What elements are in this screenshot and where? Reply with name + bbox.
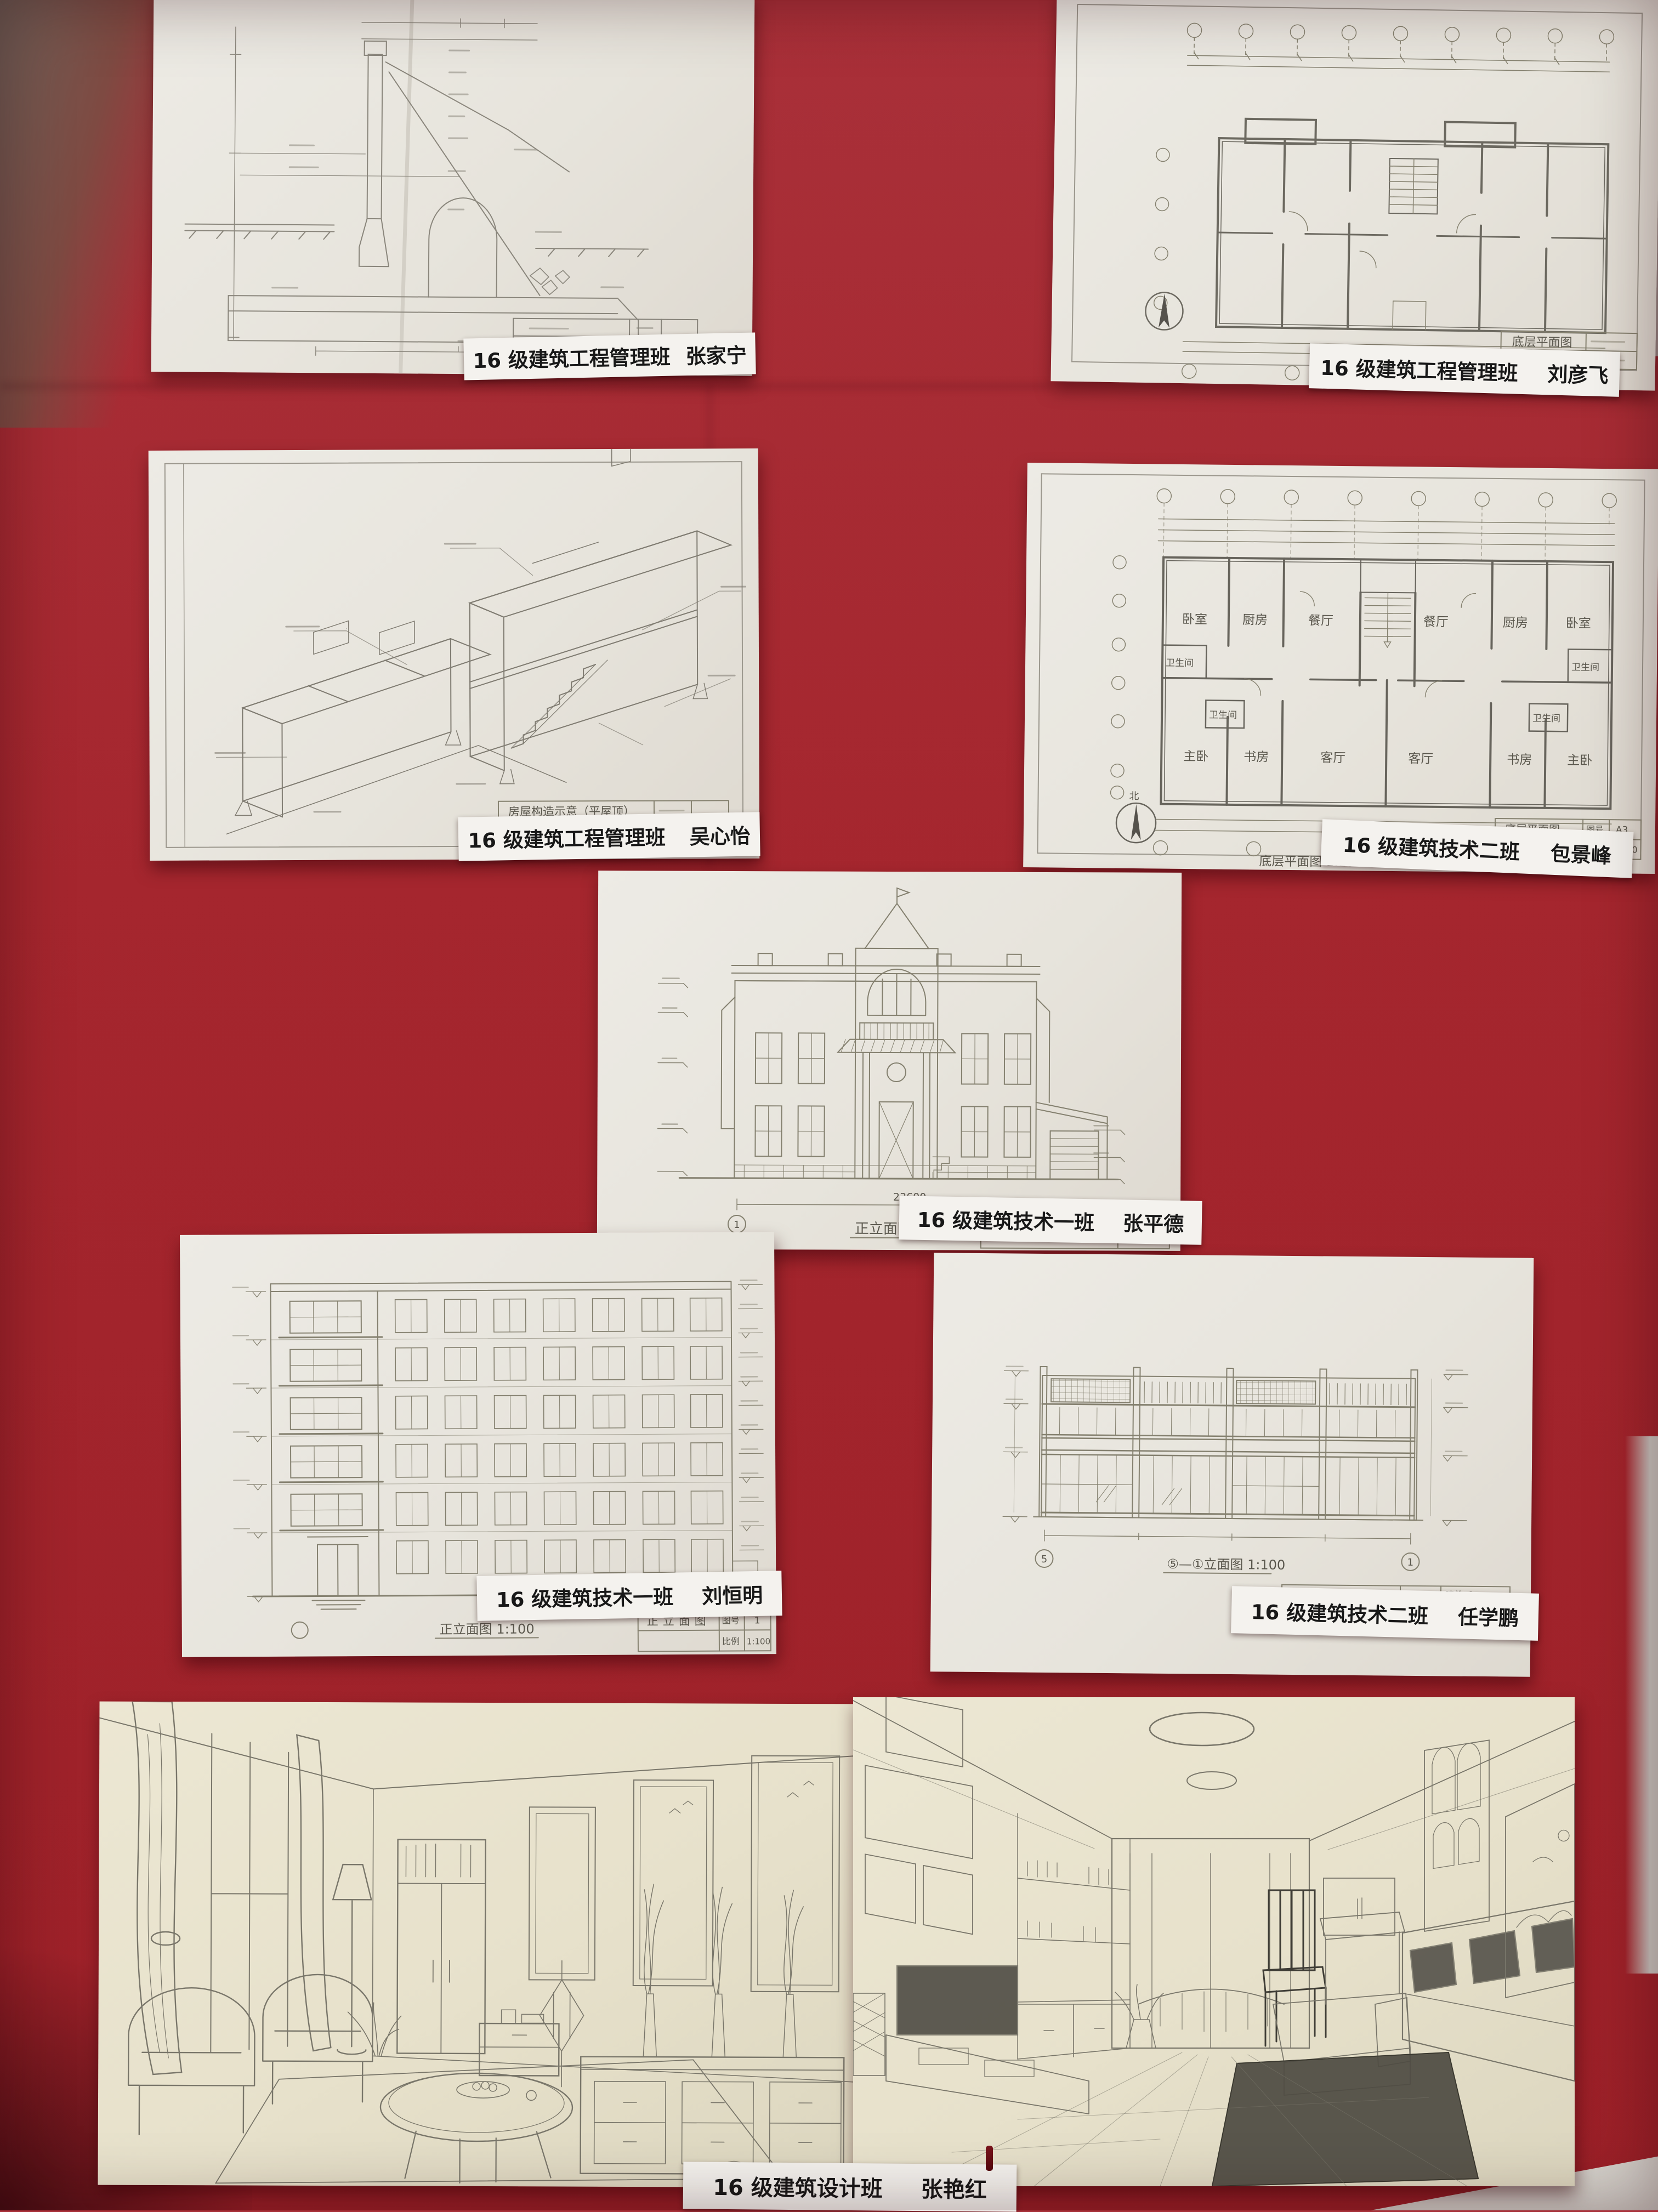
window-row [396,1539,723,1574]
svg-text:书房: 书房 [1507,753,1532,767]
svg-text:卧室: 卧室 [1182,612,1207,627]
fabric-crease-horizontal [0,384,1053,389]
axis-bubbles-left [1154,148,1170,309]
axis-bubble [292,1622,308,1639]
sheet-no: 1 [754,1615,760,1626]
svg-text:卫生间: 卫生间 [1571,662,1599,673]
drawing-sheet-floor-plan-2: 卧室 厨房 餐厅 餐厅 厨房 卧室 卫生间 卫生间 卫生间 卫生间 主卧 书房 … [1023,463,1658,874]
pushpin-icon [986,2146,993,2171]
window-row [396,1491,723,1526]
interior-perspective-living-room [98,1702,860,2186]
svg-text:卧室: 卧室 [1566,616,1591,630]
class-label: 16 级建筑技术一班 [496,1580,673,1613]
drawing-sheet-axonometric: 房屋构造示意（平屋顶） [149,448,760,861]
label-strip: 16 级建筑工程管理班 张家宁 [463,332,756,380]
leader-annotations [214,543,746,812]
storefront-elevation [1003,1366,1468,1544]
stair-icon [1287,157,1477,331]
title-block-title: 底层平面图 [1512,336,1572,350]
class-label: 16 级建筑技术一班 [917,1203,1094,1236]
window-row [395,1346,722,1381]
svg-text:卫生间: 卫生间 [1532,713,1560,725]
svg-text:厨房: 厨房 [1503,616,1528,630]
north-arrow-icon [1116,803,1156,843]
student-name: 张平德 [1123,1207,1184,1237]
room-labels: 卧室 厨房 餐厅 餐厅 厨房 卧室 卫生间 卫生间 卫生间 卫生间 主卧 书房 … [1165,612,1600,768]
student-name: 刘彦飞 [1547,357,1609,389]
label-strip: 16 级建筑设计班 张艳红 [683,2162,1017,2211]
sketch-sheet-interior-right [853,1697,1575,2186]
label-strip: 16 级建筑工程管理班 吴心怡 [458,812,760,861]
elevation-caption: ⑤—①立面图 1:100 [1167,1556,1285,1573]
north-label: 北 [1129,791,1139,802]
drawing-sheet-floor-plan-1: 底层平面图 底层平面图 [1051,0,1658,391]
svg-text:主卧: 主卧 [1567,753,1592,767]
svg-text:主卧: 主卧 [1183,749,1208,764]
plan-walls [1161,558,1613,809]
svg-text:卫生间: 卫生间 [1166,658,1194,669]
building-elevation [232,1280,765,1610]
axis-end-number: 1 [1407,1557,1414,1568]
scale-label: 比例 [722,1636,740,1647]
student-name: 张艳红 [921,2171,987,2204]
elevation-caption: 正立面图 1:100 [440,1621,535,1637]
svg-text:卫生间: 卫生间 [1209,709,1237,721]
window-row [396,1395,723,1429]
villa-elevation [657,888,1126,1212]
svg-text:餐厅: 餐厅 [1308,613,1333,628]
axis-bubbles-left [1110,556,1126,799]
svg-text:客厅: 客厅 [1408,752,1433,766]
student-name: 包景峰 [1550,837,1612,869]
axis-start-number: 1 [734,1219,740,1231]
label-strip: 16 级建筑技术一班 张平德 [899,1196,1202,1245]
wall-strip-right [1625,1436,1658,1974]
svg-text:厨房: 厨房 [1242,613,1268,627]
sheet-no-label: 图号 [722,1616,740,1626]
axonometric-cutaway [225,448,732,834]
class-label: 16 级建筑设计班 [713,2170,883,2203]
scale-value: 1:100 [747,1636,770,1646]
class-label: 16 级建筑技术二班 [1342,828,1520,865]
section-drawing [184,17,650,376]
label-strip: 16 级建筑技术一班 刘恒明 [476,1571,782,1621]
class-label: 16 级建筑工程管理班 [468,821,666,854]
paper-fold-line [401,0,413,373]
class-label: 16 级建筑技术二班 [1251,1595,1429,1629]
label-strip: 16 级建筑工程管理班 刘彦飞 [1309,343,1620,397]
window-row [395,1298,722,1333]
student-name: 刘恒明 [702,1579,763,1610]
axis-start-number: 5 [1041,1554,1048,1565]
svg-text:客厅: 客厅 [1320,751,1345,765]
wall-corner-top-left [0,0,170,428]
class-label: 16 级建筑工程管理班 [1320,351,1519,386]
drawing-sheet-villa-elevation: 1 7 23600 正立面图 正立面图 [597,871,1182,1251]
sketch-sheet-interior-left [98,1702,860,2188]
student-name: 吴心怡 [689,820,751,850]
student-name: 张家宁 [685,339,747,369]
plan-walls [1216,118,1609,333]
interior-perspective-one-point [853,1697,1575,2186]
class-label: 16 级建筑工程管理班 [473,340,671,374]
label-strip: 16 级建筑技术二班 任学鹏 [1231,1586,1539,1641]
svg-text:书房: 书房 [1243,750,1269,764]
svg-text:餐厅: 餐厅 [1423,615,1449,629]
window-row [396,1443,723,1477]
axis-bubbles-top [1157,488,1616,508]
student-name: 任学鹏 [1457,1600,1519,1631]
branch-vases [643,1884,803,2057]
north-arrow-icon [1145,292,1183,330]
drawing-sheet-section [151,0,755,376]
